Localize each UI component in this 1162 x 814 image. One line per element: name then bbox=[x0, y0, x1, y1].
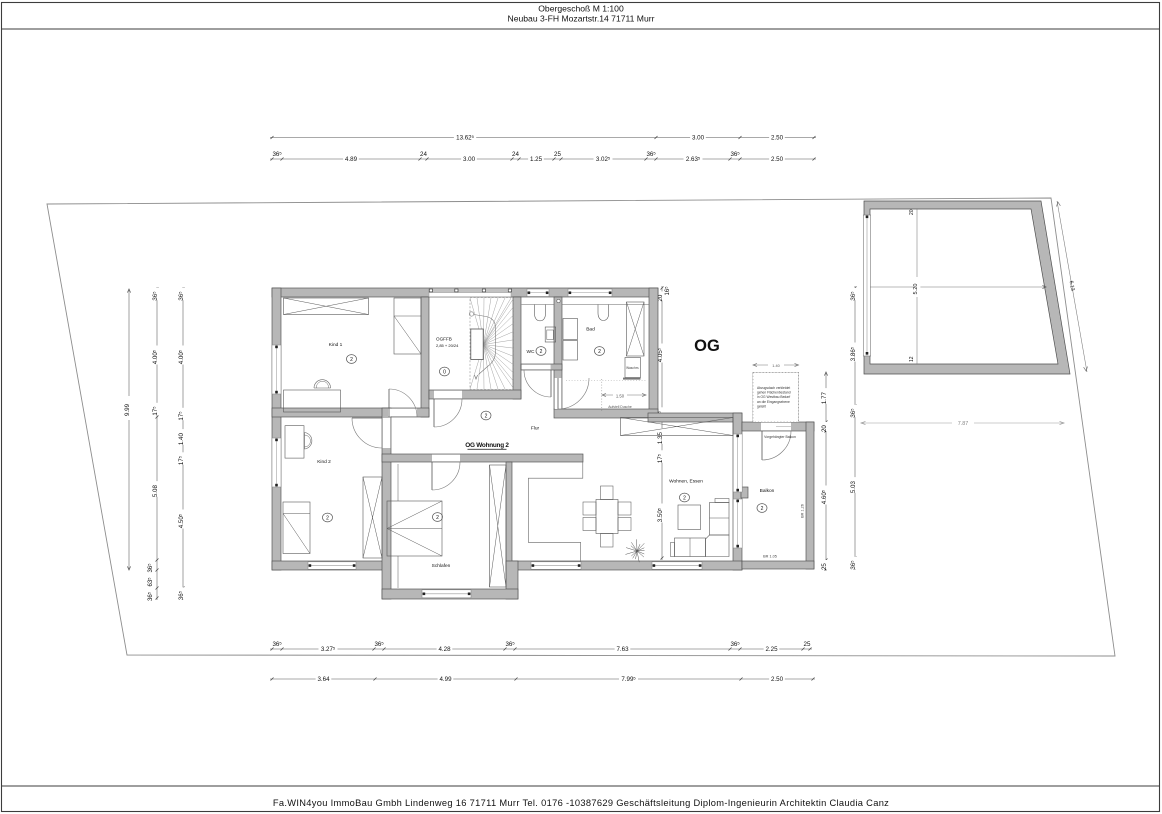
svg-text:Wohnen, Essen: Wohnen, Essen bbox=[669, 479, 703, 485]
svg-text:Aufstell Dusche: Aufstell Dusche bbox=[608, 405, 632, 409]
svg-text:in OG Westbau Bedarf: in OG Westbau Bedarf bbox=[757, 395, 790, 399]
svg-text:3.00: 3.00 bbox=[463, 156, 476, 163]
svg-text:OG: OG bbox=[694, 337, 720, 355]
svg-text:2,85 + 20/24: 2,85 + 20/24 bbox=[436, 343, 459, 348]
svg-text:1.35: 1.35 bbox=[657, 432, 664, 445]
svg-text:Vorgehängter Balkon: Vorgehängter Balkon bbox=[764, 435, 796, 439]
svg-text:7.87: 7.87 bbox=[958, 421, 969, 427]
svg-text:2: 2 bbox=[326, 516, 329, 522]
svg-text:4.89: 4.89 bbox=[345, 156, 358, 163]
svg-text:BR 1.26: BR 1.26 bbox=[801, 504, 805, 518]
svg-text:2: 2 bbox=[436, 515, 439, 521]
svg-text:2: 2 bbox=[485, 414, 488, 420]
svg-text:2: 2 bbox=[683, 496, 686, 502]
svg-text:12: 12 bbox=[909, 356, 915, 362]
svg-text:2.50: 2.50 bbox=[771, 135, 784, 142]
svg-text:Schlafen: Schlafen bbox=[432, 563, 451, 569]
svg-text:25: 25 bbox=[804, 641, 811, 648]
svg-text:7.63: 7.63 bbox=[616, 646, 629, 653]
svg-text:an die Eingangsebene: an die Eingangsebene bbox=[757, 400, 790, 404]
svg-text:2.50: 2.50 bbox=[771, 676, 784, 683]
svg-text:25: 25 bbox=[821, 563, 828, 570]
svg-text:25: 25 bbox=[554, 151, 561, 158]
svg-text:2: 2 bbox=[540, 349, 543, 355]
svg-text:2: 2 bbox=[350, 357, 353, 363]
svg-text:1.77: 1.77 bbox=[821, 392, 828, 405]
svg-text:Fa.WIN4you ImmoBau Gmbh Linden: Fa.WIN4you ImmoBau Gmbh Lindenweg 16 717… bbox=[273, 798, 889, 808]
svg-text:WC: WC bbox=[527, 349, 536, 355]
svg-text:BR 1.05: BR 1.05 bbox=[763, 555, 777, 559]
svg-text:3.00: 3.00 bbox=[692, 135, 705, 142]
svg-text:geteilt: geteilt bbox=[757, 404, 766, 408]
svg-text:1.40: 1.40 bbox=[178, 433, 185, 446]
svg-text:OG Wohnung 2: OG Wohnung 2 bbox=[465, 442, 509, 449]
svg-text:5.03: 5.03 bbox=[850, 481, 857, 494]
svg-text:20: 20 bbox=[821, 425, 828, 432]
svg-text:Neubau 3-FH Mozartstr.14 71711: Neubau 3-FH Mozartstr.14 71711 Murr bbox=[508, 14, 655, 24]
svg-text:Kind 2: Kind 2 bbox=[317, 459, 331, 465]
svg-text:20: 20 bbox=[909, 209, 915, 215]
svg-text:1.25: 1.25 bbox=[530, 156, 543, 163]
svg-text:Abzugsdach verkleidet: Abzugsdach verkleidet bbox=[757, 386, 790, 390]
svg-text:OGFFB: OGFFB bbox=[436, 337, 452, 342]
svg-text:Waschm.: Waschm. bbox=[626, 366, 639, 370]
svg-text:5.20: 5.20 bbox=[913, 284, 919, 295]
svg-text:2.25: 2.25 bbox=[765, 646, 778, 653]
svg-text:2: 2 bbox=[598, 349, 601, 355]
svg-text:24: 24 bbox=[512, 151, 519, 158]
svg-text:4.28: 4.28 bbox=[438, 646, 451, 653]
svg-text:4.99: 4.99 bbox=[439, 676, 452, 683]
svg-text:1.50: 1.50 bbox=[616, 393, 625, 398]
svg-text:3.64: 3.64 bbox=[317, 676, 330, 683]
svg-text:0: 0 bbox=[443, 370, 446, 376]
svg-text:1.40: 1.40 bbox=[772, 364, 779, 368]
svg-text:gehen Flächenbestand: gehen Flächenbestand bbox=[757, 391, 791, 395]
svg-text:5.08: 5.08 bbox=[152, 485, 159, 498]
svg-text:2.50: 2.50 bbox=[771, 156, 784, 163]
svg-text:Flur: Flur bbox=[531, 426, 540, 432]
svg-text:Kind 1: Kind 1 bbox=[329, 342, 343, 348]
svg-text:9.99: 9.99 bbox=[124, 403, 131, 416]
svg-text:Bad: Bad bbox=[586, 327, 595, 333]
svg-text:Balkon: Balkon bbox=[760, 488, 775, 494]
svg-text:2: 2 bbox=[761, 506, 764, 512]
svg-text:Obergeschoß M 1:100: Obergeschoß M 1:100 bbox=[538, 4, 624, 14]
svg-text:24: 24 bbox=[420, 151, 427, 158]
